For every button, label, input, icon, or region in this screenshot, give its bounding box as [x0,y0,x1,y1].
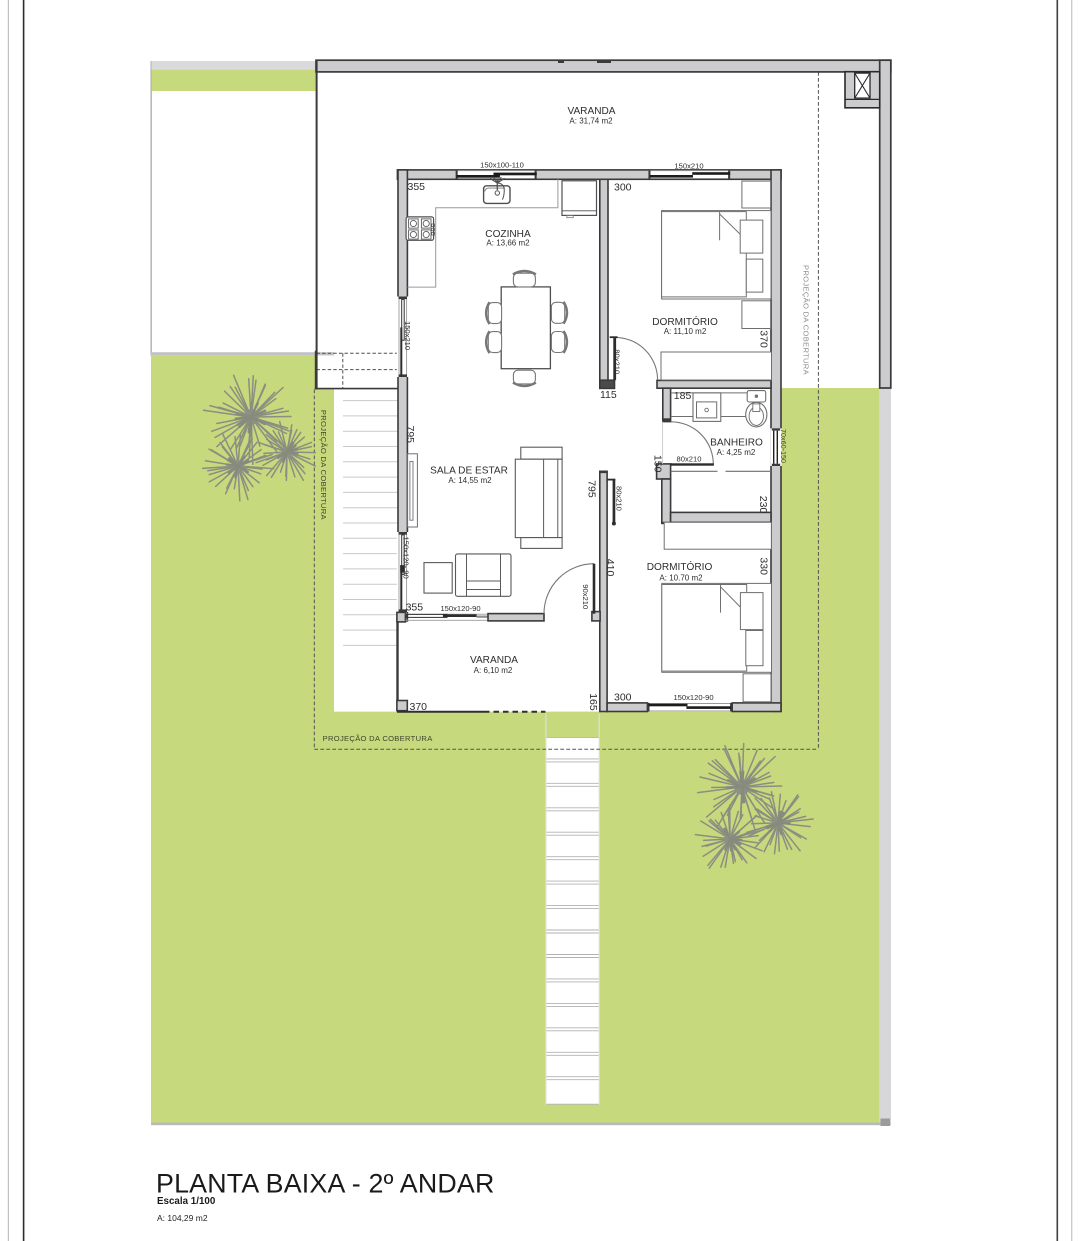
svg-text:150x120-90: 150x120-90 [673,693,713,702]
svg-text:PLANTA BAIXA - 2º ANDAR: PLANTA BAIXA - 2º ANDAR [156,1169,495,1199]
svg-text:A: 14,55 m2: A: 14,55 m2 [448,476,492,485]
svg-text:A: 31,74 m2: A: 31,74 m2 [569,116,613,125]
svg-text:300: 300 [614,692,632,704]
svg-text:DORMITÓRIO: DORMITÓRIO [647,560,713,573]
svg-text:370: 370 [758,330,770,348]
svg-text:A: 11,10 m2: A: 11,10 m2 [664,327,707,336]
svg-text:PROJEÇÃO DA COBERTURA: PROJEÇÃO DA COBERTURA [801,265,810,376]
svg-text:150x120-90: 150x120-90 [440,604,480,613]
svg-text:A: 6,10 m2: A: 6,10 m2 [474,666,513,675]
svg-text:300: 300 [614,181,632,193]
svg-text:150x100-110: 150x100-110 [480,160,524,169]
svg-text:230: 230 [757,496,769,514]
svg-text:185: 185 [674,390,692,402]
svg-text:355: 355 [406,601,424,613]
svg-text:A: 104,29 m2: A: 104,29 m2 [157,1213,208,1223]
svg-text:VARANDA: VARANDA [470,655,518,666]
svg-text:150x120- 90: 150x120- 90 [402,537,411,579]
svg-text:A: 4,25 m2: A: 4,25 m2 [717,448,756,457]
svg-text:410: 410 [604,559,616,577]
svg-text:A: 10.70 m2: A: 10.70 m2 [659,573,703,582]
svg-text:355: 355 [408,181,426,193]
svg-text:330: 330 [757,557,769,575]
svg-text:165: 165 [587,693,599,711]
svg-text:80x210: 80x210 [613,349,622,374]
svg-text:90x210: 90x210 [581,584,590,609]
svg-text:70x60-150: 70x60-150 [779,429,788,463]
svg-text:150x210: 150x210 [403,321,412,350]
svg-text:PROJEÇÃO DA COBERTURA: PROJEÇÃO DA COBERTURA [323,734,434,743]
svg-text:150: 150 [652,455,664,473]
svg-text:A: 13,66 m2: A: 13,66 m2 [486,239,530,248]
svg-text:795: 795 [404,426,416,444]
svg-text:80x210: 80x210 [614,486,623,511]
svg-text:795: 795 [586,480,598,498]
svg-text:PROJEÇÃO DA COBERTURA: PROJEÇÃO DA COBERTURA [319,410,328,521]
svg-text:80x210: 80x210 [677,454,702,463]
svg-text:370: 370 [410,701,428,713]
svg-text:115: 115 [600,389,617,401]
svg-text:150x210: 150x210 [674,162,703,171]
svg-text:Escala 1/100: Escala 1/100 [157,1196,216,1207]
